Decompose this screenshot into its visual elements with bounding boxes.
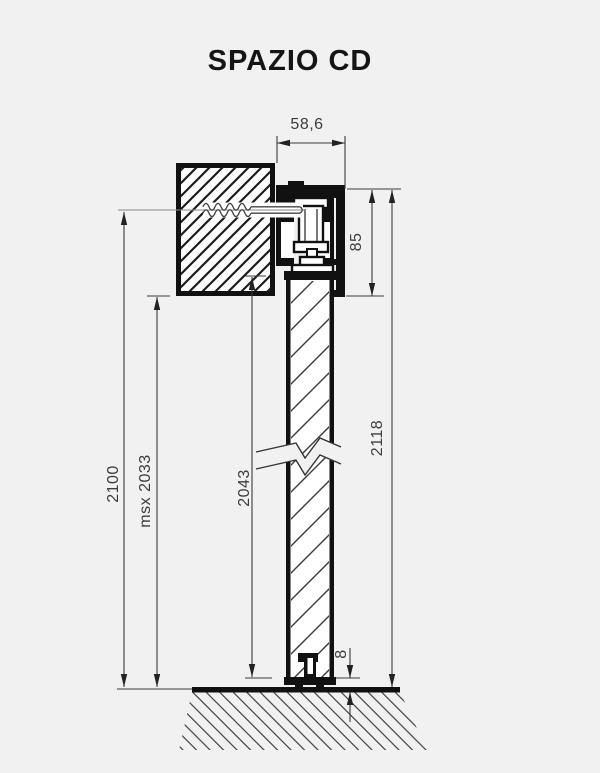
- dim-label-door-height: 2043: [236, 469, 254, 507]
- dim-label-floor-gap: 8: [333, 649, 351, 658]
- dim-label-overall-height: 2118: [369, 420, 387, 456]
- dim-label-max-height: msx 2033: [137, 454, 155, 527]
- drawing-canvas: SPAZIO CD: [0, 0, 600, 773]
- floor-section: [179, 687, 427, 750]
- dim-label-opening-height: 2100: [105, 465, 123, 503]
- dim-label-track-height: 85: [348, 233, 366, 252]
- screw-fixing: [118, 203, 306, 218]
- dim-label-track-width: 58,6: [290, 116, 323, 134]
- door-panel: [284, 271, 336, 689]
